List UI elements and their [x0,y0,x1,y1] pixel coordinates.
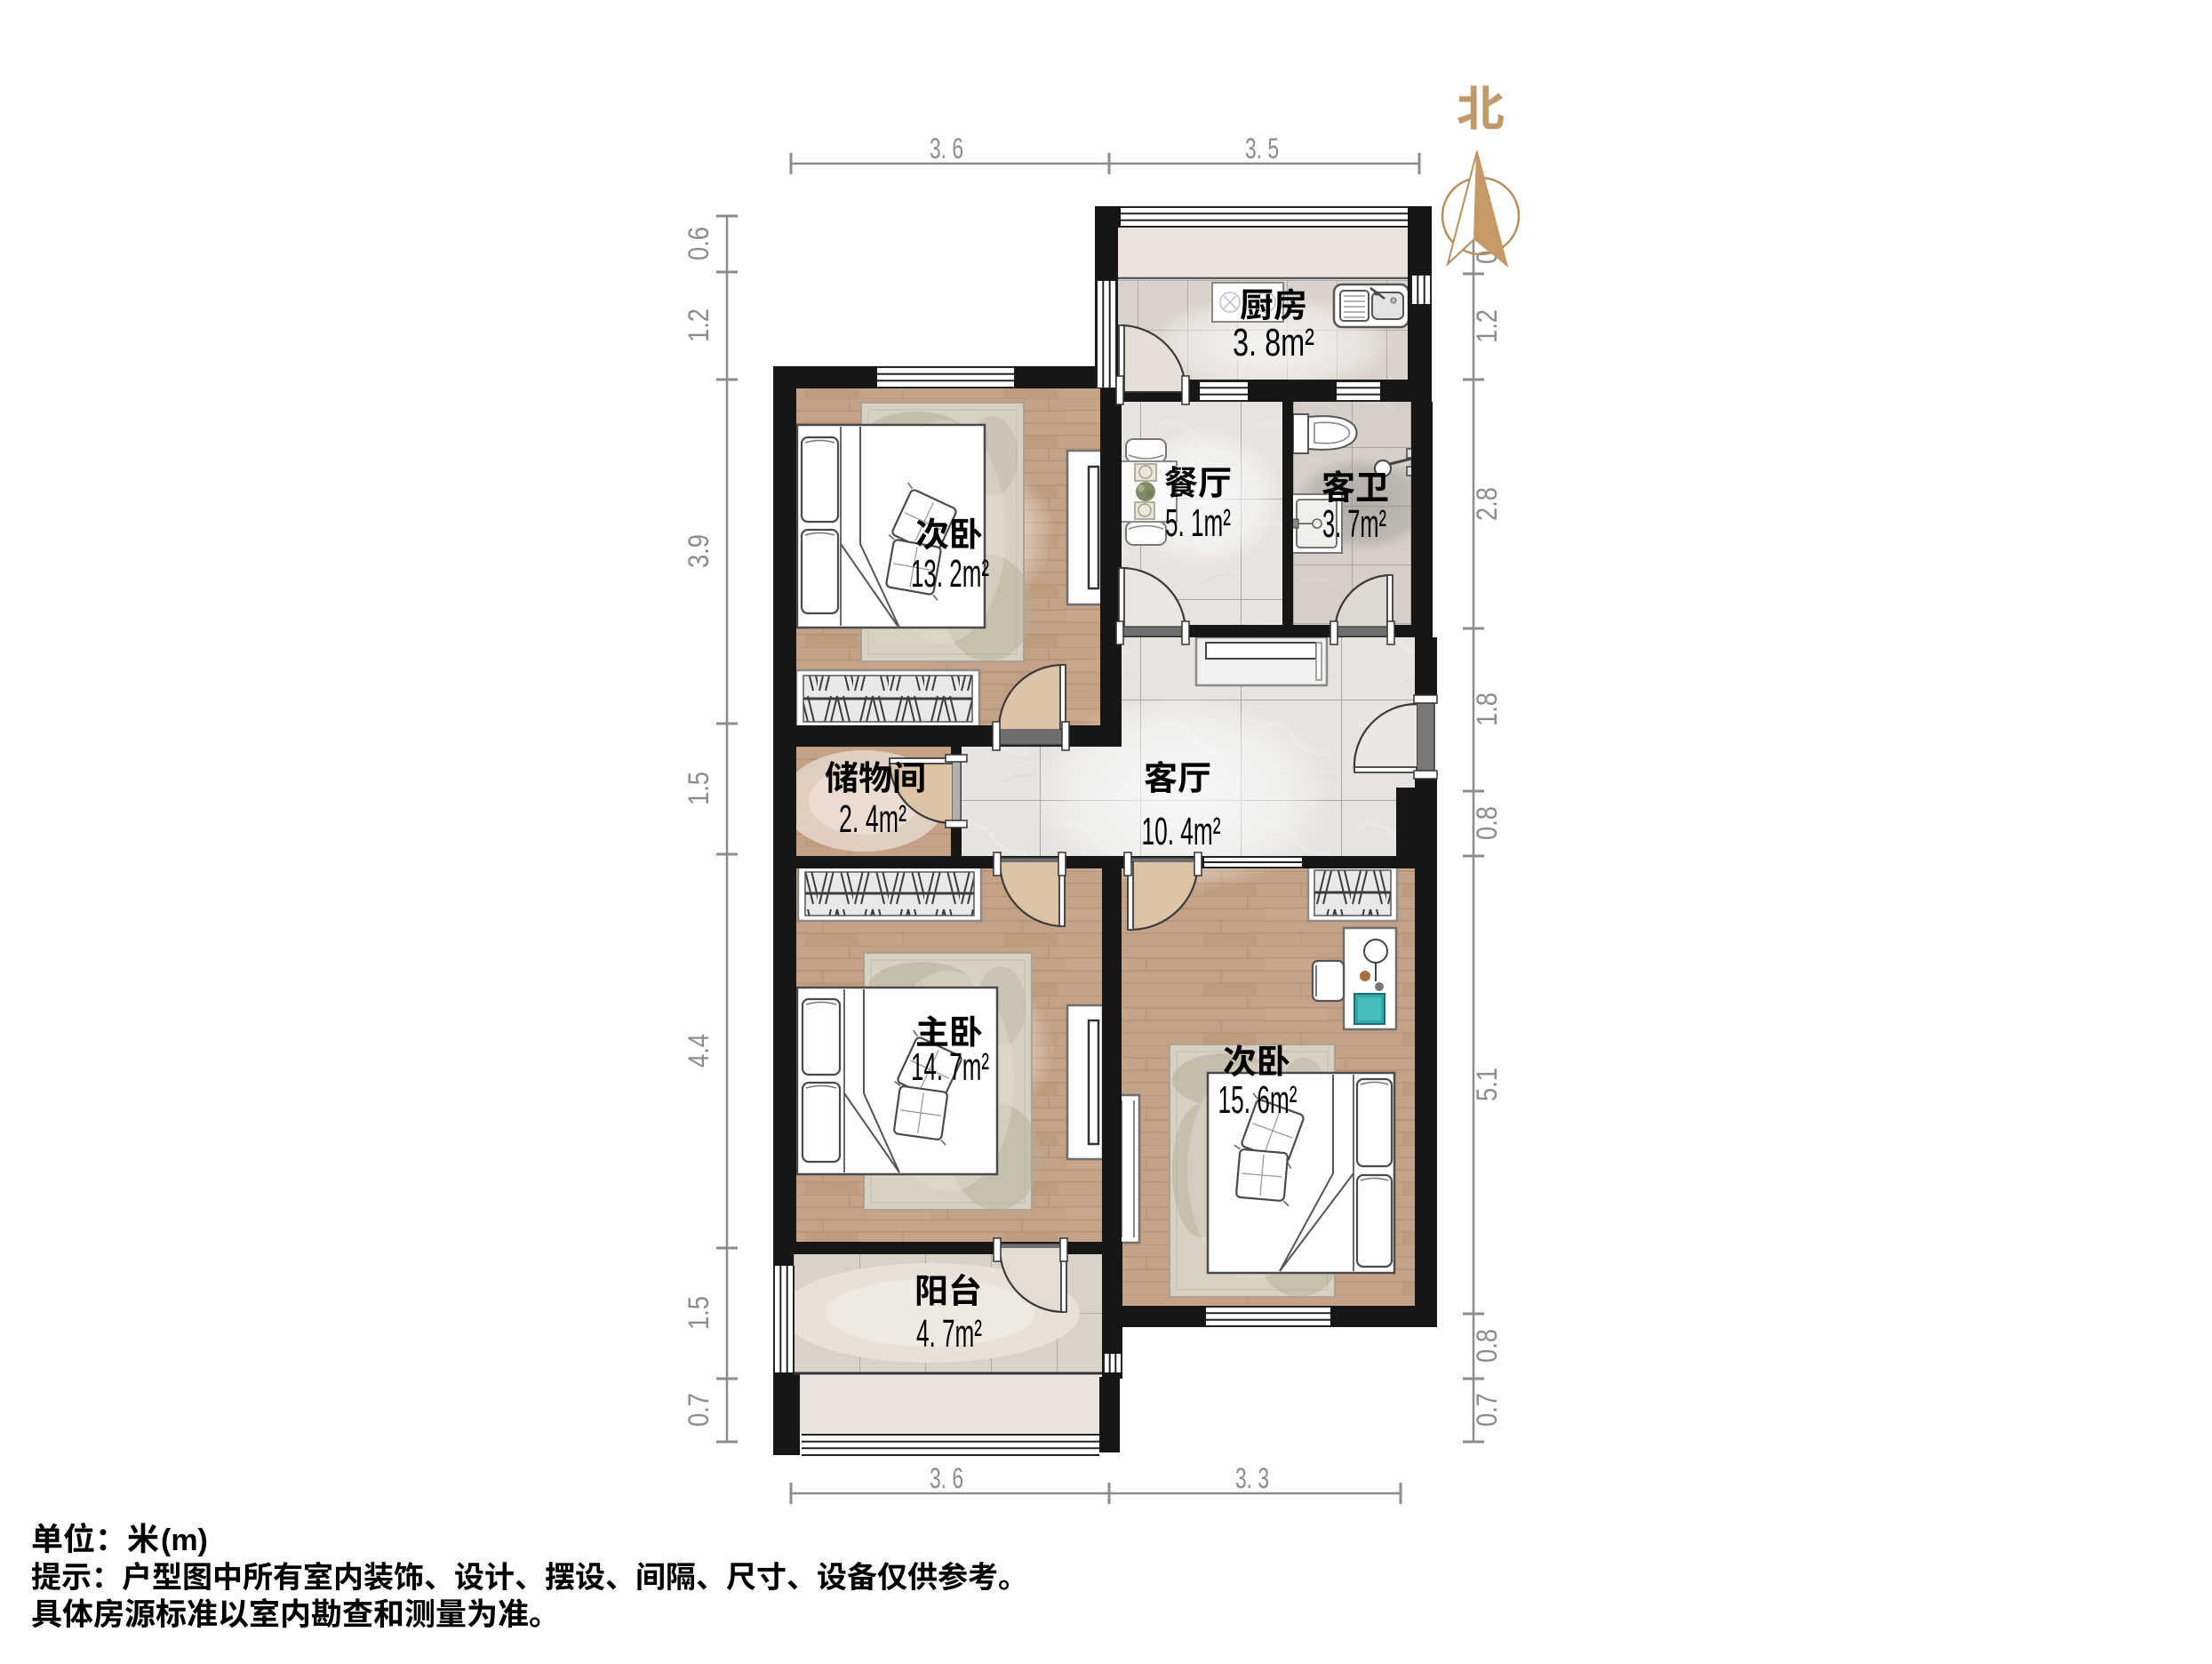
svg-text:1.8: 1.8 [1471,692,1503,726]
svg-text:3. 8m²: 3. 8m² [1233,321,1314,364]
svg-text:0.8: 0.8 [1471,1329,1503,1363]
svg-text:14. 7m²: 14. 7m² [911,1045,989,1089]
svg-text:1.5: 1.5 [683,1296,715,1330]
svg-text:(m): (m) [161,1524,208,1557]
svg-text:3. 3: 3. 3 [1235,1462,1269,1494]
svg-text:2.8: 2.8 [1471,487,1503,521]
svg-text:15. 6m²: 15. 6m² [1218,1078,1298,1122]
svg-text:3. 7m²: 3. 7m² [1322,502,1386,546]
svg-text:5. 1m²: 5. 1m² [1165,501,1231,545]
svg-text:1.2: 1.2 [1471,309,1503,343]
svg-text:5.1: 5.1 [1471,1068,1503,1101]
svg-text:1.5: 1.5 [683,772,715,805]
svg-text:0.6: 0.6 [683,227,715,260]
svg-text:0.8: 0.8 [1471,806,1503,840]
svg-text:3. 6: 3. 6 [930,1462,963,1494]
svg-text:13. 2m²: 13. 2m² [911,552,989,596]
svg-text:2. 4m²: 2. 4m² [839,797,906,841]
svg-text:4.4: 4.4 [683,1034,715,1068]
svg-text:4. 7m²: 4. 7m² [916,1312,982,1356]
svg-text:3.9: 3.9 [683,534,715,568]
svg-text:3. 6: 3. 6 [930,132,963,164]
svg-text:1.2: 1.2 [683,308,715,342]
svg-text:10. 4m²: 10. 4m² [1142,810,1221,853]
svg-text:0.7: 0.7 [683,1393,715,1427]
svg-text:3. 5: 3. 5 [1245,132,1279,164]
svg-text:0.7: 0.7 [1471,1393,1503,1427]
